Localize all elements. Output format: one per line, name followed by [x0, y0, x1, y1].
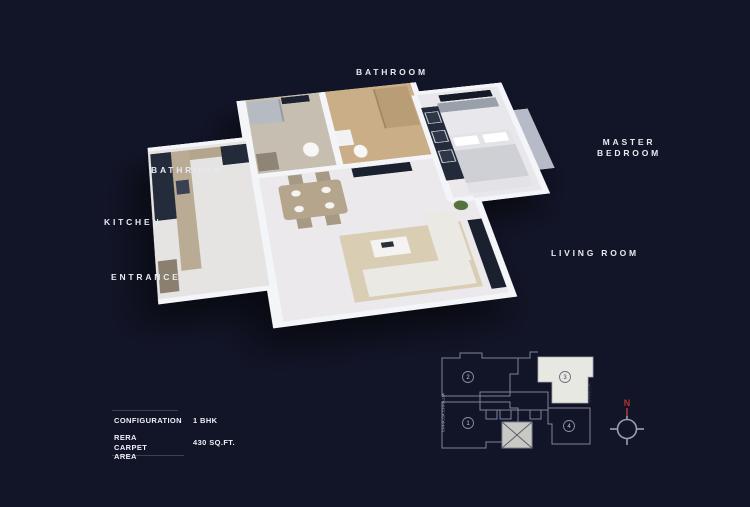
fridge [220, 144, 249, 165]
shower1-pan [247, 99, 284, 125]
label-bathroom-left: BATHROOM [151, 165, 223, 175]
table-rule-bottom [112, 455, 184, 456]
kitchen-sink [176, 180, 190, 195]
vanity1 [256, 152, 280, 172]
key-plan: 2 1 3 4 CHHAJJA CHHAJJA CHHAJJA [430, 344, 608, 461]
key-plan-edge-label-left: CHHAJJA CHHAJJA [442, 393, 446, 432]
table-rule-top [112, 410, 178, 411]
label-living-room: LIVING ROOM [551, 248, 639, 258]
label-master-bedroom-line2: BEDROOM [589, 148, 669, 159]
rera-carpet-area-label: RERA CARPET AREA [114, 433, 172, 462]
label-master-bedroom: MASTER BEDROOM [589, 137, 669, 158]
floor-plan-3d [145, 72, 622, 368]
floor-plan-render [145, 72, 622, 368]
compass-rose: N [604, 392, 650, 457]
unit2-number: 2 [466, 375, 470, 381]
unit4-number: 4 [567, 424, 571, 430]
key-plan-edge-label-right: CHHAJJA [588, 383, 592, 402]
dining-chair-1 [288, 174, 304, 185]
compass-circle [618, 420, 637, 439]
configuration-label: CONFIGURATION [114, 416, 182, 426]
key-plan-staircase [502, 422, 532, 448]
configuration-value: 1 BHK [193, 416, 218, 425]
dining-chair-4 [325, 214, 341, 225]
label-entrance: ENTRANCE [111, 272, 181, 282]
floor-plan-page: BATHROOM BATHROOM KITCHEN ENTRANCE MASTE… [0, 0, 750, 507]
unit1-number: 1 [466, 421, 470, 427]
compass-north-label: N [624, 398, 631, 408]
label-bathroom-top: BATHROOM [356, 67, 428, 77]
dining-chair-2 [315, 171, 331, 182]
label-master-bedroom-line1: MASTER [589, 137, 669, 148]
rera-carpet-area-value: 430 SQ.FT. [193, 438, 235, 447]
dining-chair-3 [296, 217, 312, 228]
label-kitchen: KITCHEN [104, 217, 161, 227]
